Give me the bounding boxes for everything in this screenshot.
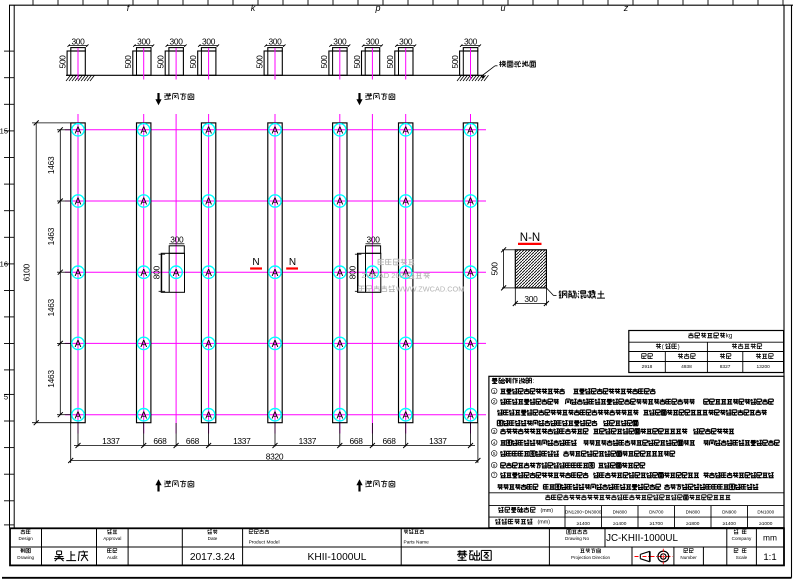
svg-text:1337: 1337 [299, 436, 317, 446]
svg-text:WWW.ZWCAD.COM: WWW.ZWCAD.COM [396, 284, 465, 293]
svg-text:300: 300 [170, 235, 184, 245]
svg-text:5: 5 [4, 393, 8, 402]
svg-text:300: 300 [202, 37, 216, 47]
svg-text:DN1200~DN3000: DN1200~DN3000 [565, 510, 602, 515]
svg-text:(mm): (mm) [541, 508, 554, 514]
svg-text:DN800: DN800 [613, 510, 628, 515]
svg-text:300: 300 [464, 37, 478, 47]
svg-text:300: 300 [333, 37, 347, 47]
svg-text:3: 3 [493, 429, 496, 434]
svg-text:Scale: Scale [736, 555, 748, 560]
svg-text:2918: 2918 [642, 364, 653, 370]
svg-text:15: 15 [0, 127, 8, 136]
svg-text:A: A [336, 197, 343, 208]
svg-text:8327: 8327 [720, 364, 731, 370]
svg-text:4938: 4938 [681, 364, 692, 370]
svg-text:mm: mm [763, 533, 777, 543]
svg-text:1463: 1463 [46, 370, 56, 388]
svg-text:N-N: N-N [520, 232, 540, 244]
svg-text:A: A [336, 268, 343, 279]
svg-text:300: 300 [137, 37, 151, 47]
svg-text:A: A [272, 197, 279, 208]
svg-text:A: A [272, 339, 279, 350]
svg-text:4: 4 [493, 440, 496, 445]
svg-text:668: 668 [350, 436, 364, 446]
svg-text:300: 300 [268, 37, 282, 47]
svg-text:A: A [173, 268, 180, 279]
svg-text:A: A [205, 268, 212, 279]
svg-text:2017.3.24: 2017.3.24 [190, 552, 236, 563]
svg-text:A: A [75, 268, 82, 279]
svg-text:Product Model: Product Model [249, 540, 280, 546]
svg-text:668: 668 [153, 436, 167, 446]
svg-text:1337: 1337 [429, 436, 447, 446]
svg-text:800: 800 [151, 266, 161, 280]
svg-text:z: z [623, 3, 629, 13]
svg-text:Parts Name: Parts Name [404, 540, 430, 546]
svg-text:1:1: 1:1 [763, 552, 776, 563]
svg-text:DN700: DN700 [649, 510, 664, 515]
svg-text:A: A [75, 339, 82, 350]
svg-text:300: 300 [71, 37, 85, 47]
svg-text:Audit: Audit [107, 555, 118, 560]
svg-text:668: 668 [186, 436, 200, 446]
svg-text:300: 300 [367, 235, 381, 245]
svg-text:(mm): (mm) [538, 520, 551, 526]
svg-text:≥1400: ≥1400 [577, 521, 591, 527]
svg-text:DN1000: DN1000 [757, 510, 774, 515]
svg-text:500: 500 [156, 55, 166, 69]
svg-text:A: A [140, 268, 147, 279]
svg-text:500: 500 [489, 262, 499, 276]
svg-text:DN900: DN900 [722, 510, 737, 515]
svg-text:DN800: DN800 [686, 510, 701, 515]
svg-text:6100: 6100 [22, 263, 32, 281]
svg-text:A: A [467, 410, 474, 421]
svg-text:A: A [75, 410, 82, 421]
svg-text:ZWCAD 2009: ZWCAD 2009 [362, 271, 409, 280]
svg-text:13200: 13200 [757, 364, 771, 370]
svg-text:p: p [374, 3, 380, 13]
svg-text:Company: Company [732, 536, 752, 541]
svg-text:A: A [140, 339, 147, 350]
svg-text:A: A [402, 410, 409, 421]
svg-text:kg: kg [726, 333, 733, 340]
svg-text:(: ( [662, 343, 664, 350]
svg-text:A: A [272, 268, 279, 279]
svg-text:5: 5 [493, 451, 496, 456]
svg-text:1: 1 [493, 389, 496, 394]
svg-text:A: A [205, 197, 212, 208]
svg-text:Design: Design [19, 536, 34, 541]
svg-text:Projection Direction: Projection Direction [571, 555, 611, 560]
svg-text:500: 500 [319, 55, 329, 69]
svg-text:800: 800 [348, 266, 358, 280]
svg-text:A: A [75, 125, 82, 136]
svg-text:1337: 1337 [102, 436, 120, 446]
svg-text:668: 668 [383, 436, 397, 446]
svg-text:A: A [336, 339, 343, 350]
svg-text:k: k [251, 3, 256, 13]
svg-text:A: A [75, 197, 82, 208]
svg-text:300: 300 [366, 37, 380, 47]
svg-text::: : [532, 378, 534, 385]
svg-text:A: A [205, 125, 212, 136]
svg-text:A: A [467, 197, 474, 208]
svg-text:500: 500 [385, 55, 395, 69]
svg-text:A: A [402, 339, 409, 350]
svg-text:N: N [289, 257, 296, 268]
svg-text:≥1800: ≥1800 [686, 521, 700, 527]
svg-text:A: A [402, 125, 409, 136]
svg-text:A: A [272, 410, 279, 421]
svg-text:≥1700: ≥1700 [650, 521, 664, 527]
svg-text:6: 6 [493, 463, 496, 468]
svg-text:≥1400: ≥1400 [723, 521, 737, 527]
svg-text:300: 300 [170, 37, 184, 47]
svg-text:Drawing No: Drawing No [565, 536, 589, 541]
svg-text:A: A [140, 125, 147, 136]
svg-text:u: u [500, 3, 505, 13]
svg-text:8320: 8320 [266, 451, 284, 461]
svg-text:Date: Date [208, 536, 218, 541]
svg-text:500: 500 [254, 55, 264, 69]
svg-text:A: A [467, 339, 474, 350]
svg-text:A: A [467, 125, 474, 136]
svg-text:500: 500 [188, 55, 198, 69]
svg-text:500: 500 [123, 55, 133, 69]
svg-text:A: A [336, 125, 343, 136]
svg-text:KHII-1000UL: KHII-1000UL [308, 552, 367, 563]
svg-text:Drawing: Drawing [17, 555, 34, 560]
svg-text:A: A [467, 268, 474, 279]
svg-text:1337: 1337 [233, 436, 251, 446]
svg-text:JC-KHII-1000UL: JC-KHII-1000UL [606, 533, 678, 544]
svg-text:2: 2 [493, 399, 496, 404]
svg-text:≥1000: ≥1000 [759, 521, 773, 527]
svg-text:A: A [205, 410, 212, 421]
svg-text:500: 500 [57, 55, 67, 69]
svg-text:300: 300 [524, 294, 538, 304]
svg-text:500: 500 [450, 55, 460, 69]
svg-text:1463: 1463 [46, 156, 56, 174]
svg-text:N: N [252, 257, 259, 268]
svg-text:A: A [140, 197, 147, 208]
svg-text:A: A [272, 125, 279, 136]
svg-text:1463: 1463 [46, 227, 56, 245]
svg-text:16: 16 [0, 260, 8, 269]
svg-text:): ) [678, 343, 680, 350]
svg-text:7: 7 [493, 473, 496, 478]
svg-text:≥1400: ≥1400 [613, 521, 627, 527]
svg-text:300: 300 [399, 37, 413, 47]
svg-text:A: A [402, 197, 409, 208]
svg-text:500: 500 [352, 55, 362, 69]
svg-text:1463: 1463 [46, 298, 56, 316]
svg-text:Approval: Approval [103, 536, 121, 541]
svg-text:A: A [336, 410, 343, 421]
svg-text:A: A [140, 410, 147, 421]
svg-text:Number: Number [680, 555, 697, 560]
svg-text:A: A [205, 339, 212, 350]
